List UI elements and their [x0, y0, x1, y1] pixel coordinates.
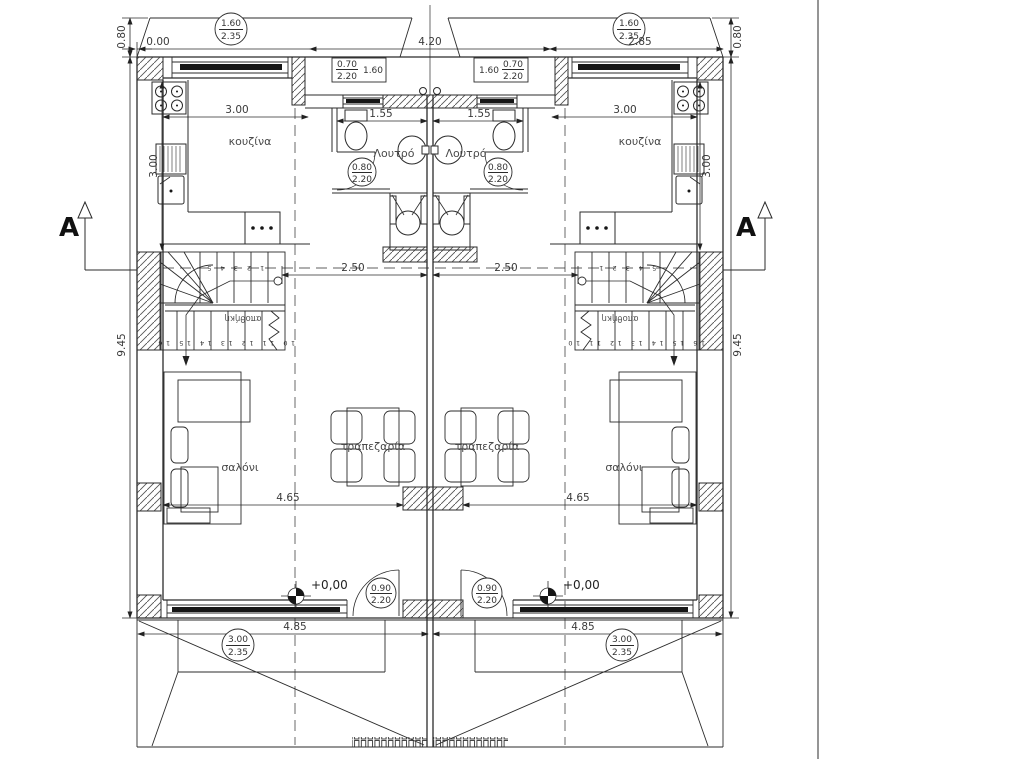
entry-door-tag-den: 2.20 [477, 596, 497, 606]
shower-drain [440, 211, 464, 235]
level-marker-left [281, 581, 311, 611]
level-label-right: +0,00 [563, 578, 600, 592]
stair-numbers-lower-left: 10 11 12 13 14 15 16 [155, 339, 295, 347]
entry-door-tag-den: 2.20 [371, 596, 391, 606]
storage-label-right: αποθήκη [602, 313, 639, 323]
drainboard [156, 144, 186, 174]
toilet-bowl [493, 122, 515, 150]
stair-numbers-upper-left: 1 2 3 4 5 [204, 264, 264, 272]
window-tag-num: 0.70 [503, 60, 523, 70]
stair-numbers-lower-right: 16 15 14 13 12 11 10 [565, 339, 705, 347]
window-tag-length: 1.60 [479, 66, 499, 76]
window-tag-length: 1.60 [363, 66, 383, 76]
balcony-tag-den: 2.35 [221, 32, 241, 42]
level-label-left: +0,00 [311, 578, 348, 592]
dim-canopy-right: 0.80 [732, 25, 744, 48]
kitchen-label-right: κουζίνα [619, 135, 662, 148]
interior-dimensions [138, 82, 722, 634]
sofa-left [164, 372, 250, 524]
toilet-bowl [345, 122, 367, 150]
balcony-tag-num: 1.60 [221, 19, 241, 29]
bath-door-tag-den: 2.20 [488, 175, 508, 185]
bath-door-tag-den: 2.20 [352, 175, 372, 185]
entry-door-tag-num: 0.90 [477, 584, 497, 594]
dim-kitchen-width-left: 3.00 [225, 104, 248, 116]
dim-kitchen-depth-right: 3.00 [701, 154, 713, 177]
ramp-diagonal [139, 621, 424, 745]
stair-numbers-upper-right: 5 4 3 2 1 [596, 264, 656, 272]
dim-bath-width-left: 1.55 [369, 108, 392, 120]
ramp-diagonal [436, 621, 721, 745]
dim-unit-front-left: 4.85 [283, 621, 306, 633]
toilet-tank [493, 110, 515, 121]
bath-door-tag-num: 0.80 [352, 163, 372, 173]
sofa-right [610, 372, 696, 524]
plan-linework [78, 0, 818, 759]
garage-tag-num: 3.00 [612, 635, 632, 645]
dim-kitchen-width-right: 3.00 [613, 104, 636, 116]
party-wall [427, 95, 433, 747]
storage-label-left: αποθήκη [225, 313, 262, 323]
section-arrow-icon [78, 202, 92, 218]
dim-living-right: 4.65 [566, 492, 589, 504]
section-letter-left: A [59, 213, 79, 243]
level-marker-right [533, 581, 563, 611]
dining-label-left: τραπεζαρία [341, 440, 406, 453]
kitchen-label-left: κουζίνα [229, 135, 272, 148]
window-tag-den: 2.20 [503, 72, 523, 82]
dim-kitchen-depth-left: 3.00 [148, 154, 160, 177]
shower-drain [396, 211, 420, 235]
dim-side-right: 9.45 [732, 333, 744, 356]
dim-porch-width: 4.20 [418, 36, 441, 48]
floor-plan-sheet: 0.00 4.20 2.85 0.80 0.80 9.45 9.45 1.60 … [0, 0, 1024, 759]
bathroom-label-left: Λουτρό [374, 147, 415, 160]
bathroom-left [332, 108, 429, 250]
dining-label-right: τραπεζαρία [455, 440, 520, 453]
dim-unit-front-right: 4.85 [571, 621, 594, 633]
drainboard [674, 144, 704, 174]
bath-door-tag-num: 0.80 [488, 163, 508, 173]
garage-tag-num: 3.00 [228, 635, 248, 645]
dim-hall-right: 2.50 [494, 262, 517, 274]
entry-door-tag-num: 0.90 [371, 584, 391, 594]
paving-strip [433, 737, 508, 747]
dim-canopy-left: 0.80 [116, 25, 128, 48]
section-letter-right: A [736, 213, 756, 243]
floor-plan-drawing: 0.00 4.20 2.85 0.80 0.80 9.45 9.45 1.60 … [0, 0, 1024, 759]
section-arrow-icon [758, 202, 772, 218]
window-tag-num: 0.70 [337, 60, 357, 70]
dim-bath-width-right: 1.55 [467, 108, 490, 120]
dim-side-left: 9.45 [116, 333, 128, 356]
opening-tags [215, 13, 645, 661]
living-label-right: σαλόνι [605, 461, 643, 474]
dim-hall-left: 2.50 [341, 262, 364, 274]
living-label-left: σαλόνι [221, 461, 259, 474]
dim-zero: 0.00 [146, 36, 169, 48]
toilet-tank [345, 110, 367, 121]
bathroom-right [431, 108, 528, 250]
balcony-tag-num: 1.60 [619, 19, 639, 29]
garage-tag-den: 2.35 [228, 648, 248, 658]
paving-strip [352, 737, 427, 747]
bathroom-label-right: Λουτρό [446, 147, 487, 160]
section-line-left [78, 202, 137, 270]
dim-living-left: 4.65 [276, 492, 299, 504]
garage-tag-den: 2.35 [612, 648, 632, 658]
window-tag-den: 2.20 [337, 72, 357, 82]
balcony-tag-den: 2.35 [619, 32, 639, 42]
